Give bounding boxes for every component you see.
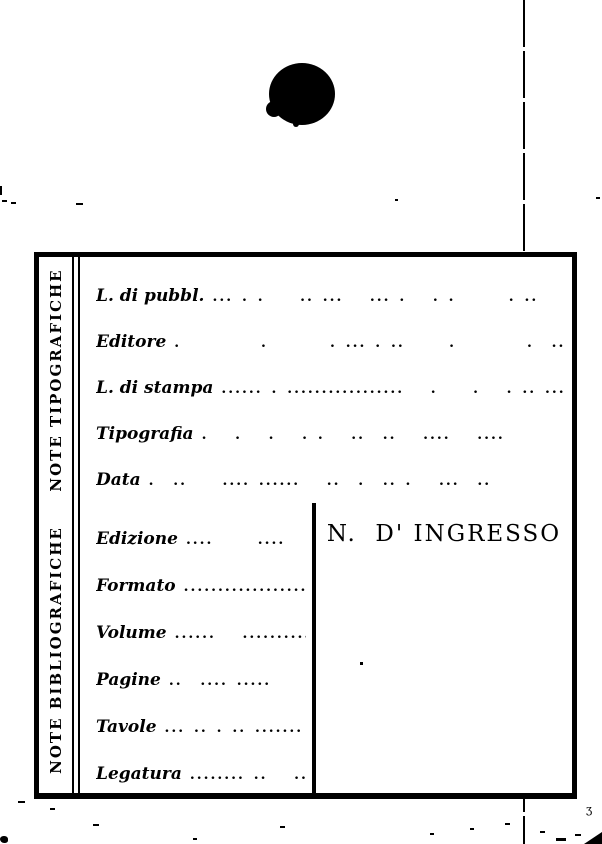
dotted-fill-line: ..................... bbox=[184, 579, 306, 595]
noise-speck bbox=[2, 200, 7, 202]
noise-speck bbox=[540, 831, 545, 833]
field-row-legatura: Legatura........ .. .. bbox=[96, 750, 306, 797]
section-side-label: NOTE BIBLIOGRAFICHE bbox=[47, 526, 65, 774]
noise-speck bbox=[360, 662, 363, 665]
field-label: Tipografia bbox=[96, 424, 194, 444]
noise-speck bbox=[470, 828, 474, 830]
noise-speck bbox=[18, 801, 25, 803]
field-label: L. di pubbl. bbox=[96, 286, 204, 306]
corner-smudge bbox=[584, 832, 602, 844]
noise-speck bbox=[0, 186, 2, 195]
dotted-fill-line: .. .... ..... ... bbox=[169, 673, 306, 689]
field-label: Edizione bbox=[96, 529, 178, 549]
noise-speck bbox=[395, 199, 398, 201]
field-row-formato: Formato..................... bbox=[96, 562, 306, 609]
dotted-fill-line: ... .. . .. ....... bbox=[165, 720, 304, 736]
dotted-fill-line: ........ .. .. bbox=[190, 767, 306, 783]
dotted-fill-line: ...... .............. bbox=[175, 626, 306, 642]
dotted-fill-line: . .. .... ...... .. . .. . ... .. bbox=[149, 473, 491, 489]
dotted-fill-line: . . . ... . .. . . .... bbox=[174, 335, 566, 351]
field-label: Volume bbox=[96, 623, 167, 643]
noise-speck bbox=[280, 826, 285, 828]
fields-area-top: L. di pubbl.... . . .. ... ... . . . . .… bbox=[80, 257, 572, 503]
noise-speck bbox=[556, 838, 566, 841]
noise-blob bbox=[0, 836, 8, 843]
ink-blot bbox=[266, 62, 338, 128]
dotted-fill-line: . . . . . .. .. .... .... bbox=[202, 427, 505, 443]
noise-speck bbox=[93, 824, 99, 826]
section-note-tipografiche: NOTE TIPOGRAFICHE L. di pubbl.... . . ..… bbox=[39, 257, 572, 503]
scanned-page: NOTE TIPOGRAFICHE L. di pubbl.... . . ..… bbox=[0, 0, 602, 844]
field-row-l-di-stampa: L. di stampa...... . ................. .… bbox=[96, 365, 566, 411]
noise-speck bbox=[11, 202, 16, 204]
fields-area-bottom: Edizione.... .... . . Formato...........… bbox=[80, 503, 312, 797]
field-label: Pagine bbox=[96, 670, 161, 690]
noise-speck bbox=[193, 838, 197, 840]
field-label: Formato bbox=[96, 576, 176, 596]
noise-mark: ʒ bbox=[586, 803, 592, 816]
field-row-pagine: Pagine.. .... ..... ... bbox=[96, 656, 306, 703]
field-row-tipografia: Tipografia. . . . . .. .. .... .... bbox=[96, 411, 566, 457]
section-side-label: NOTE TIPOGRAFICHE bbox=[47, 268, 65, 491]
noise-speck bbox=[76, 203, 83, 205]
field-row-editore: Editore. . . ... . .. . . .... bbox=[96, 319, 566, 365]
side-label-column: NOTE TIPOGRAFICHE bbox=[39, 257, 72, 503]
accession-card: NOTE TIPOGRAFICHE L. di pubbl.... . . ..… bbox=[34, 252, 577, 799]
ingresso-cell: N. D' INGRESSO bbox=[316, 503, 572, 797]
dotted-fill-line: ...... . ................. . . . .. .... bbox=[221, 381, 566, 397]
field-label: Tavole bbox=[96, 717, 157, 737]
dotted-fill-line: .... .... . . bbox=[186, 532, 306, 548]
field-row-data: Data. .. .... ...... .. . .. . ... .. bbox=[96, 457, 566, 503]
field-row-tavole: Tavole... .. . .. ....... bbox=[96, 703, 306, 750]
dotted-fill-line: ... . . .. ... ... . . . . .. ..... bbox=[212, 289, 566, 305]
ingresso-title: N. D' INGRESSO bbox=[327, 521, 561, 547]
field-row-edizione: Edizione.... .... . . bbox=[96, 515, 306, 562]
field-row-l-di-pubbl: L. di pubbl.... . . .. ... ... . . . . .… bbox=[96, 273, 566, 319]
noise-speck bbox=[505, 823, 510, 825]
field-label: Data bbox=[96, 470, 141, 490]
noise-speck bbox=[50, 808, 55, 810]
side-label-column: NOTE BIBLIOGRAFICHE bbox=[39, 503, 72, 797]
section-note-bibliografiche: NOTE BIBLIOGRAFICHE Edizione.... .... . … bbox=[39, 503, 572, 797]
double-rule-divider bbox=[72, 257, 80, 503]
field-row-volume: Volume...... .............. bbox=[96, 609, 306, 656]
field-label: Editore bbox=[96, 332, 166, 352]
double-rule-divider bbox=[72, 503, 80, 797]
noise-speck bbox=[430, 833, 434, 835]
noise-speck bbox=[596, 197, 600, 199]
field-label: Legatura bbox=[96, 764, 182, 784]
field-label: L. di stampa bbox=[96, 378, 213, 398]
noise-speck bbox=[575, 834, 581, 836]
